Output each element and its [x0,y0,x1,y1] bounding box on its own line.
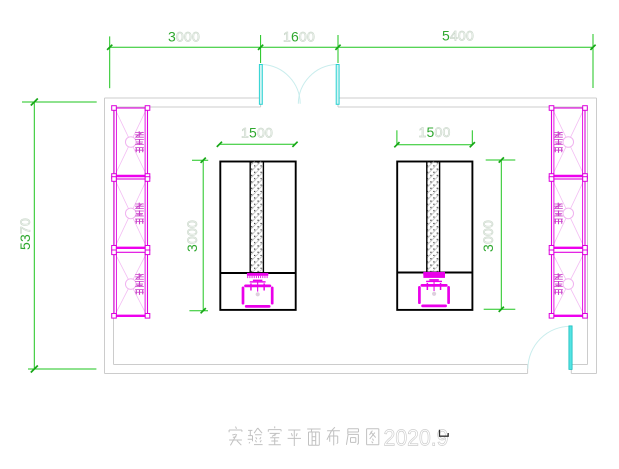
svg-text:5400: 5400 [442,28,474,44]
svg-text:3000: 3000 [168,29,200,45]
svg-text:1500: 1500 [419,124,451,140]
svg-text:2020.9: 2020.9 [384,425,449,451]
svg-text:5370: 5370 [17,218,33,250]
svg-text:1600: 1600 [283,29,315,45]
svg-text:1500: 1500 [241,125,273,141]
svg-text:3000: 3000 [184,220,200,252]
svg-text:3000: 3000 [480,220,496,252]
